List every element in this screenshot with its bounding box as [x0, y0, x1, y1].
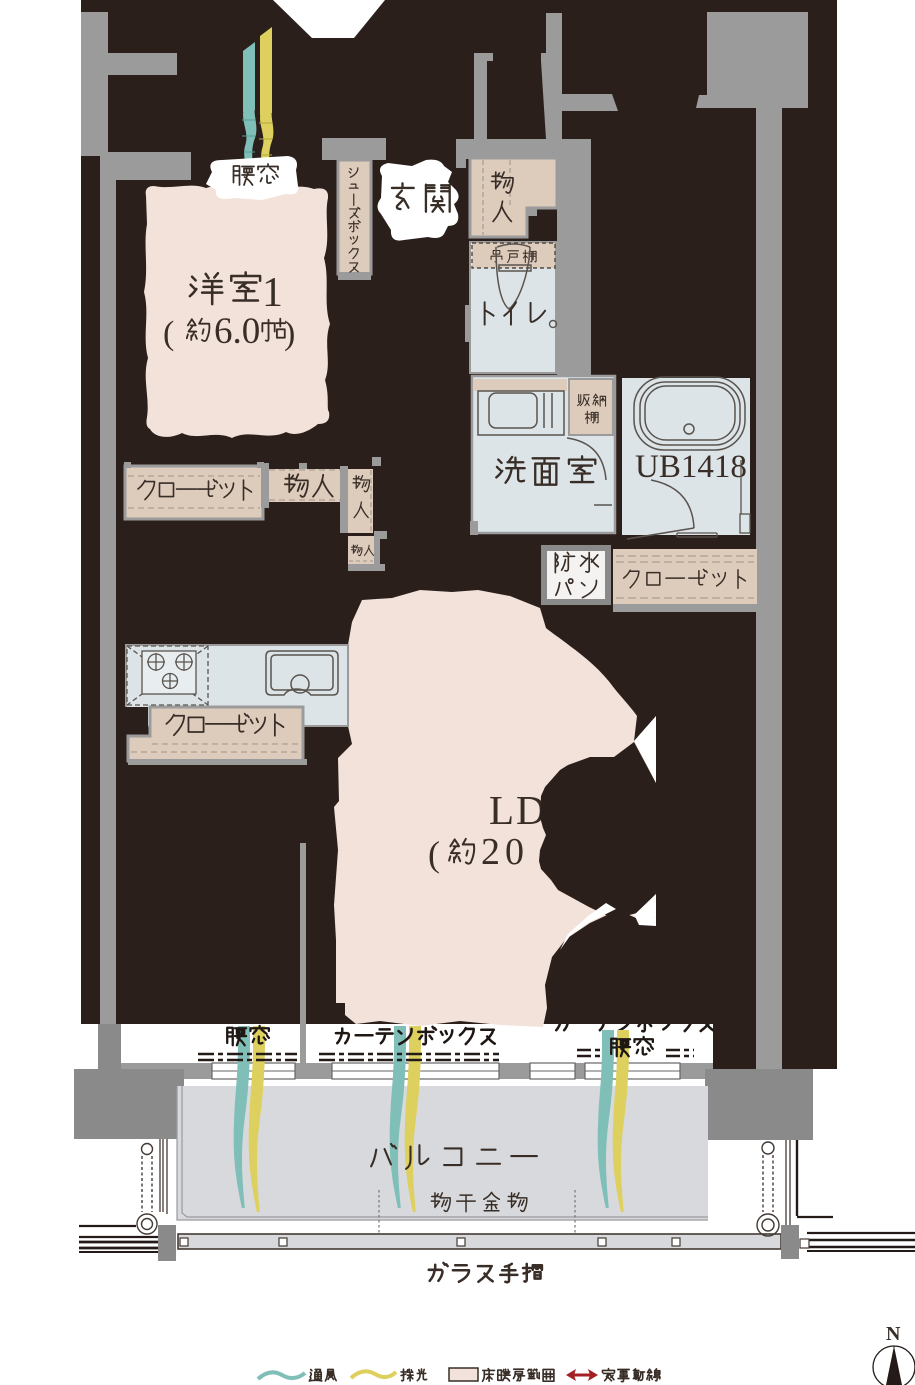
svg-text:(: ( [163, 315, 174, 352]
svg-text:): ) [284, 315, 295, 352]
svg-text:(: ( [428, 834, 440, 874]
svg-text:1: 1 [262, 270, 283, 316]
svg-text:LD: LD [489, 787, 548, 833]
svg-text:20: 20 [481, 831, 529, 873]
svg-text:N: N [886, 1323, 901, 1345]
svg-text:6.0: 6.0 [214, 311, 260, 352]
